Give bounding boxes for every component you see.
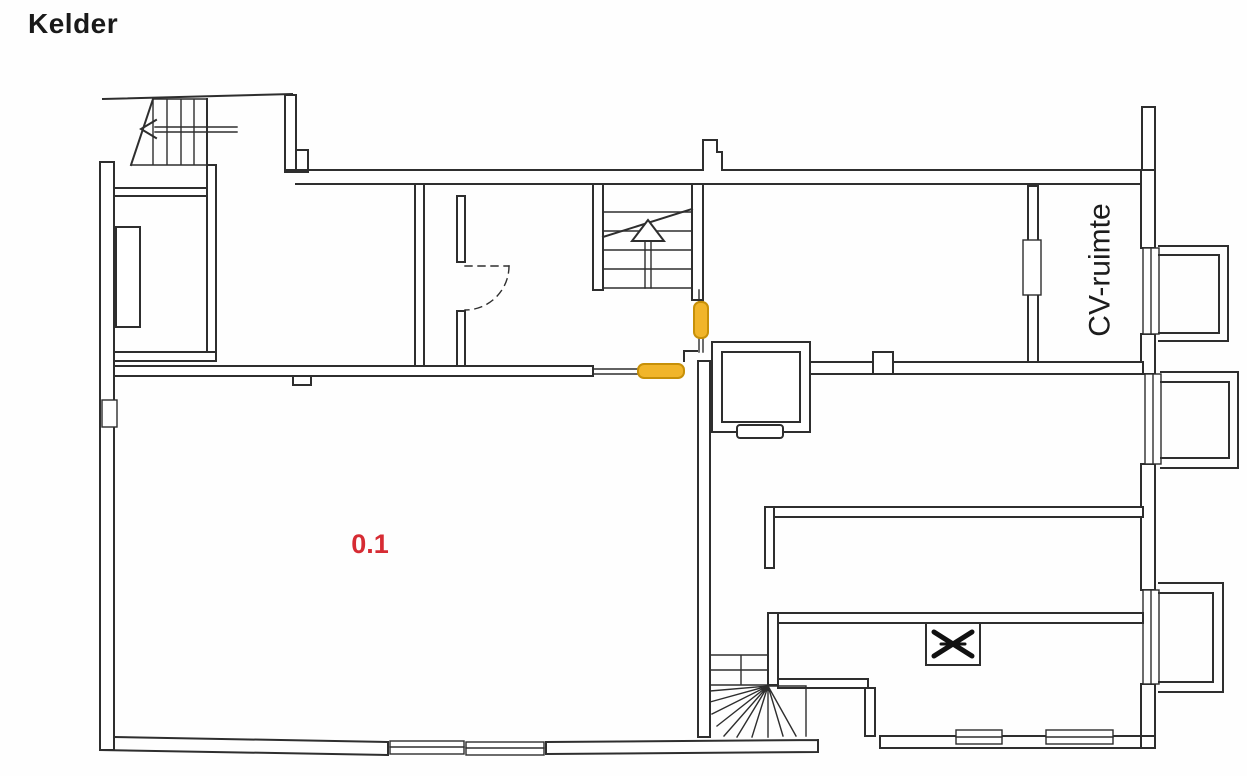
window: [1145, 374, 1161, 464]
window: [1046, 730, 1113, 744]
bay-window-middle: [1161, 372, 1238, 468]
wall-segment: [285, 95, 296, 172]
outer-wall-top: [285, 170, 1143, 184]
ventilation-symbol: [926, 623, 980, 665]
bay-window-top: [1159, 246, 1228, 341]
window: [102, 400, 117, 427]
window: [390, 741, 464, 754]
outer-wall-bottom: [546, 740, 818, 754]
outer-wall-bottom: [100, 737, 388, 755]
elevator-shaft: [712, 342, 810, 438]
staircase-winder: [710, 655, 806, 737]
outer-wall-right: [1141, 684, 1155, 748]
window: [1143, 248, 1159, 334]
door-swing-arc: [465, 266, 509, 310]
room-top-left: [114, 165, 216, 361]
cv-ruimte-room: CV-ruimte: [1023, 186, 1117, 362]
wall-stub: [684, 351, 697, 361]
outer-wall-bottom: [880, 736, 1155, 748]
outer-wall-top-right-extension: [1142, 107, 1155, 170]
wall-room01-top: [114, 366, 593, 385]
outer-wall-right: [1141, 464, 1155, 590]
window: [956, 730, 1002, 744]
bay-windows: [1159, 246, 1238, 692]
room-label-main: 0.1: [351, 529, 389, 559]
elevator-door: [737, 425, 783, 438]
outer-wall-top-left-edge: [103, 94, 292, 99]
chimney-block: [116, 227, 140, 327]
bay-window-bottom: [1159, 583, 1223, 692]
window: [1143, 590, 1159, 684]
interior-wall-mid-right: [810, 352, 1143, 374]
staircase-top-left: [131, 99, 237, 165]
window: [466, 742, 544, 755]
interior-wall-room01-right: [698, 361, 710, 737]
interior-wall: [415, 184, 424, 366]
interior-wall-with-door: [457, 196, 509, 366]
door-highlight: [638, 364, 684, 378]
outer-wall-left: [100, 162, 114, 750]
windows: [102, 248, 1161, 755]
highlighted-door-horizontal: [593, 364, 684, 378]
cv-door: [1023, 240, 1041, 295]
outer-wall-right: [1141, 170, 1155, 248]
outer-walls: [100, 94, 1155, 755]
door-highlight: [694, 302, 708, 338]
interior-walls: [114, 184, 710, 737]
room-label-cv: CV-ruimte: [1084, 203, 1117, 336]
floorplan-page: Kelder: [0, 0, 1247, 776]
floorplan-drawing: CV-ruimte 0.1: [0, 0, 1247, 776]
wall-step: [296, 150, 308, 172]
wall-notch: [293, 376, 311, 385]
staircase-central: [593, 184, 703, 300]
interior-wall-partition-upper: [765, 507, 1143, 568]
chimney-notch: [703, 140, 722, 170]
